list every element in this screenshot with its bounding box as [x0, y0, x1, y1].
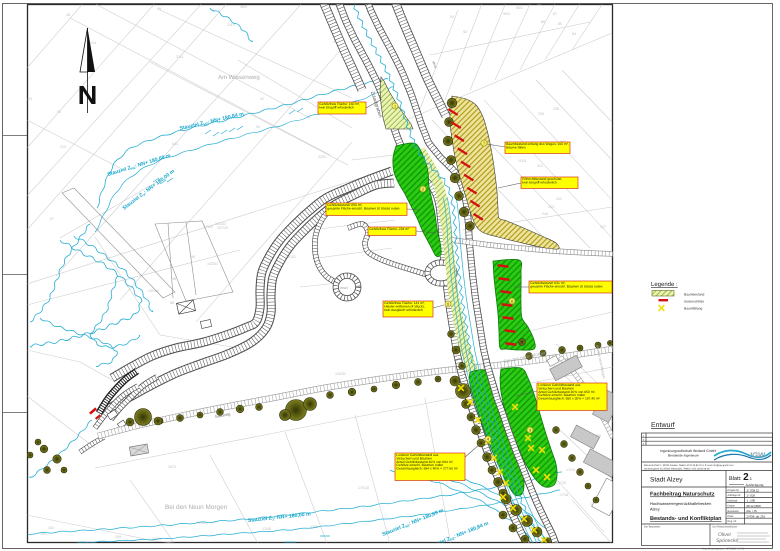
svg-text:1672: 1672	[168, 465, 176, 469]
svg-text:Legende :: Legende :	[651, 281, 678, 288]
svg-text:Maßstab: Maßstab	[728, 499, 738, 502]
svg-text:55: 55	[57, 110, 61, 114]
svg-text:Datei: Datei	[728, 515, 734, 518]
svg-text:164: 164	[48, 526, 54, 530]
svg-text:85: 85	[558, 22, 562, 26]
svg-text:49/2: 49/2	[240, 5, 247, 9]
svg-text:170/10: 170/10	[358, 486, 369, 490]
svg-text:2111: 2111	[176, 55, 183, 59]
svg-text:Insel: Insel	[340, 286, 348, 290]
svg-text:08.12.2020: 08.12.2020	[747, 504, 761, 508]
svg-text:Der Entwurfsverfasser: Der Entwurfsverfasser	[713, 526, 738, 529]
svg-text:Gesamtausgleich: 694 x 40% = 2: Gesamtausgleich: 694 x 40% = 277,60 m²	[396, 467, 458, 471]
svg-text:27039_alt_201: 27039_alt_201	[747, 514, 766, 518]
svg-text:213: 213	[60, 145, 66, 149]
svg-text:Beratende Ingenieure: Beratende Ingenieure	[668, 454, 699, 458]
svg-text:kein Eingriff erforderlich: kein Eingriff erforderlich	[319, 105, 354, 109]
svg-text:Bestands- und Konfliktplan: Bestands- und Konfliktplan	[650, 516, 722, 522]
svg-text:gesamte Fläche einschl. Bäumen: gesamte Fläche einschl. Bäumen (9 Stück)…	[530, 285, 602, 289]
svg-text:Bäume fällen: Bäume fällen	[506, 145, 525, 149]
svg-text:90/1: 90/1	[516, 6, 523, 10]
svg-text:Stadt Alzey: Stadt Alzey	[650, 477, 683, 484]
svg-text:214: 214	[90, 41, 96, 45]
svg-text:8: 8	[447, 302, 449, 306]
svg-text:Datum: Datum	[728, 505, 735, 508]
svg-text:Bearbeiter: Bearbeiter	[728, 510, 740, 513]
svg-text:170/3: 170/3	[204, 225, 213, 229]
svg-text:Gesamtausgleich: 658 x 30% = 1: Gesamtausgleich: 658 x 30% = 197,40 m²	[538, 397, 600, 401]
svg-text:27.026: 27.026	[747, 494, 756, 498]
svg-text:115/1: 115/1	[518, 159, 527, 163]
svg-text:92: 92	[463, 30, 467, 34]
svg-text:52: 52	[260, 97, 264, 101]
svg-text:2203: 2203	[318, 155, 326, 159]
svg-text:Weg: Weg	[454, 282, 459, 289]
svg-text:242: 242	[556, 197, 562, 201]
svg-text:Bahnhofs-Platz 1, 55232 Simter: Bahnhofs-Platz 1, 55232 Simtere, Telefon…	[644, 464, 734, 467]
svg-text:53: 53	[256, 125, 260, 129]
svg-text:4: 4	[487, 437, 489, 441]
svg-text:Reg.-Nr.: Reg.-Nr.	[728, 520, 738, 523]
svg-text:88: 88	[170, 301, 174, 305]
svg-text:Entwurf: Entwurf	[651, 421, 675, 429]
svg-text:7: 7	[483, 141, 485, 145]
svg-text:98: 98	[157, 7, 161, 11]
svg-text:Ingenieurgesellschaft Weiland: Ingenieurgesellschaft Weiland GmbH	[660, 449, 716, 453]
svg-text:Ausfertigung: Ausfertigung	[746, 483, 764, 487]
svg-text:kein Eingriff erforderlich: kein Eingriff erforderlich	[522, 180, 557, 184]
svg-text:238: 238	[553, 107, 559, 111]
svg-text:170/8: 170/8	[262, 527, 271, 531]
svg-text:6: 6	[511, 299, 513, 303]
svg-text:91: 91	[450, 15, 454, 19]
svg-text:120/32: 120/32	[335, 372, 346, 376]
svg-text:IGW: IGW	[750, 451, 766, 460]
svg-text:1718: 1718	[560, 493, 568, 497]
svg-text:244: 244	[542, 212, 548, 216]
svg-text:Fachbeitrag Naturschutz: Fachbeitrag Naturschutz	[650, 492, 715, 498]
svg-text:Baumbestand: Baumbestand	[684, 293, 705, 297]
svg-text:Sickerschlitze: Sickerschlitze	[684, 300, 704, 304]
svg-text:Ma. / JS: Ma. / JS	[747, 509, 757, 513]
svg-text:gesamte Fläche einschl. Bäumen: gesamte Fläche einschl. Bäumen (8 Stück)…	[327, 206, 399, 210]
svg-text:3: 3	[529, 428, 531, 432]
svg-text:169: 169	[115, 535, 121, 539]
svg-text:Projekt-Nr.: Projekt-Nr.	[728, 489, 740, 492]
svg-text:27.039.22: 27.039.22	[747, 488, 760, 492]
svg-text:157/23: 157/23	[217, 226, 228, 230]
svg-text:1: 1	[394, 104, 396, 108]
svg-text:57: 57	[50, 217, 54, 221]
svg-text:237: 237	[600, 225, 606, 229]
svg-text:1716: 1716	[558, 481, 566, 485]
svg-text:Der Bearbeiter: Der Bearbeiter	[644, 526, 660, 529]
svg-text:Auftrags-Nr.: Auftrags-Nr.	[728, 494, 742, 497]
svg-text:Bei den Neun Morgen: Bei den Neun Morgen	[165, 504, 228, 511]
svg-text:Baumfällung: Baumfällung	[684, 307, 702, 311]
svg-text:17/24: 17/24	[566, 468, 575, 472]
svg-text:13/104: 13/104	[148, 289, 159, 293]
svg-text:Alzey: Alzey	[650, 507, 660, 512]
svg-text:239: 239	[538, 112, 544, 116]
svg-text:90/2: 90/2	[503, 12, 510, 16]
svg-text:243: 243	[548, 205, 554, 209]
svg-text:1 : 500: 1 : 500	[747, 499, 756, 503]
svg-text:Koordinatensystem • ETRS89 /: Koordinatensystem • ETRS89 / UTM	[702, 548, 744, 551]
svg-text:Spönecké: Spönecké	[716, 538, 738, 544]
svg-text:Schierengasse 2a, 65344 Wiesba: Schierengasse 2a, 65344 Wiesbaden, Telef…	[644, 467, 710, 470]
svg-text:86: 86	[541, 20, 545, 24]
svg-text:84: 84	[572, 32, 576, 36]
svg-text:48: 48	[66, 13, 70, 17]
svg-text:Hochwasserregenrückhaltebecken: Hochwasserregenrückhaltebecken	[650, 501, 711, 506]
svg-text:115: 115	[537, 164, 543, 168]
svg-text:2: 2	[422, 187, 424, 191]
svg-text:kein Ausgleich erforderlich: kein Ausgleich erforderlich	[384, 308, 423, 312]
svg-text:99: 99	[191, 255, 195, 259]
svg-text:541: 541	[172, 142, 178, 146]
svg-text:98: 98	[172, 277, 176, 281]
svg-text:Gehölzfreie Fläche: 234 m²: Gehölzfreie Fläche: 234 m²	[369, 227, 410, 231]
svg-text:152/31: 152/31	[207, 262, 218, 266]
svg-text:87: 87	[553, 12, 557, 16]
svg-text:Am Wiesenweg: Am Wiesenweg	[218, 74, 260, 81]
